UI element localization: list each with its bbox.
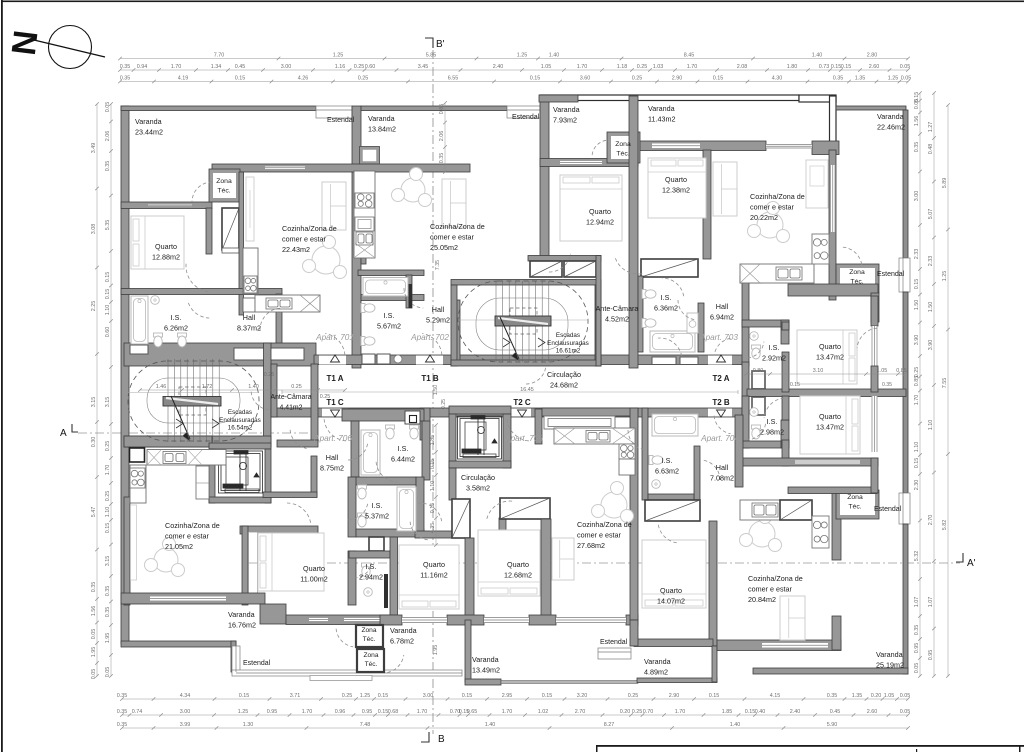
svg-text:1.10: 1.10	[928, 420, 934, 431]
svg-text:2.95: 2.95	[502, 693, 513, 699]
svg-text:0.35: 0.35	[117, 709, 128, 715]
svg-text:Zona: Zona	[615, 141, 631, 148]
svg-text:1.40: 1.40	[248, 384, 259, 390]
svg-text:1.25: 1.25	[238, 709, 249, 715]
svg-text:Cozinha/Zona de: Cozinha/Zona de	[430, 222, 485, 231]
svg-text:0.15: 0.15	[713, 75, 724, 81]
svg-text:comer e estar: comer e estar	[748, 584, 793, 593]
svg-text:Varanda: Varanda	[390, 626, 417, 635]
svg-text:0.20: 0.20	[620, 709, 631, 715]
svg-text:Varanda: Varanda	[472, 655, 499, 664]
svg-text:1.10: 1.10	[105, 507, 111, 518]
svg-text:0.05: 0.05	[900, 709, 911, 715]
svg-text:Varanda: Varanda	[648, 104, 675, 113]
svg-text:0.25: 0.25	[291, 384, 302, 390]
svg-text:2.90: 2.90	[672, 75, 683, 81]
svg-text:I.S.: I.S.	[398, 444, 409, 453]
svg-text:I.S.: I.S.	[366, 562, 377, 571]
svg-text:11.16m2: 11.16m2	[420, 571, 447, 580]
svg-text:Téc.: Téc.	[616, 151, 629, 158]
svg-text:0.15: 0.15	[914, 279, 920, 290]
svg-text:3.00: 3.00	[914, 191, 920, 202]
svg-text:1.07: 1.07	[914, 597, 920, 608]
svg-text:Téc.: Téc.	[365, 661, 378, 668]
svg-text:1.85: 1.85	[722, 709, 733, 715]
svg-text:0.05: 0.05	[91, 629, 97, 640]
svg-text:0.15: 0.15	[745, 709, 756, 715]
svg-text:3.00: 3.00	[180, 709, 191, 715]
svg-text:comer e estar: comer e estar	[165, 531, 210, 540]
svg-text:0.25: 0.25	[914, 367, 920, 378]
svg-text:Hall: Hall	[243, 313, 256, 322]
svg-text:0.05: 0.05	[900, 693, 911, 699]
svg-text:Apart. 701: Apart. 701	[315, 333, 354, 342]
svg-text:1.05: 1.05	[541, 64, 552, 70]
svg-text:Zona: Zona	[216, 178, 232, 185]
svg-text:0.15: 0.15	[430, 459, 436, 470]
svg-text:1.25: 1.25	[888, 75, 899, 81]
svg-text:22.46m2: 22.46m2	[877, 123, 905, 132]
svg-text:3.15: 3.15	[105, 556, 111, 567]
svg-text:0.60: 0.60	[105, 327, 111, 338]
svg-text:0.25: 0.25	[632, 75, 643, 81]
svg-text:0.85: 0.85	[439, 104, 445, 115]
svg-text:0.35: 0.35	[914, 625, 920, 636]
svg-text:Varanda: Varanda	[135, 117, 162, 126]
svg-text:Estendal: Estendal	[512, 114, 540, 121]
svg-text:Varanda: Varanda	[876, 650, 903, 659]
svg-text:1.10: 1.10	[914, 442, 920, 453]
svg-text:1.56: 1.56	[91, 606, 97, 617]
svg-text:0.15: 0.15	[542, 693, 553, 699]
svg-text:T2 C: T2 C	[513, 398, 531, 407]
svg-text:1.80: 1.80	[787, 64, 798, 70]
svg-text:1.70: 1.70	[302, 709, 313, 715]
svg-text:6.63m2: 6.63m2	[655, 467, 679, 476]
svg-text:7.70: 7.70	[214, 52, 225, 58]
svg-text:Circulação: Circulação	[547, 370, 581, 379]
svg-text:3.00: 3.00	[281, 64, 292, 70]
svg-text:5.35: 5.35	[105, 220, 111, 231]
svg-text:2.06: 2.06	[439, 131, 445, 142]
svg-text:5.32: 5.32	[914, 551, 920, 562]
svg-text:0.74: 0.74	[132, 709, 143, 715]
svg-text:Quarto: Quarto	[819, 342, 841, 351]
svg-text:Zona: Zona	[363, 652, 378, 659]
svg-text:25.19m2: 25.19m2	[876, 661, 904, 670]
svg-text:0.20: 0.20	[871, 693, 882, 699]
svg-text:Hall: Hall	[716, 463, 729, 472]
svg-text:3.15: 3.15	[105, 397, 111, 408]
svg-text:22.43m2: 22.43m2	[282, 245, 310, 254]
svg-text:1.50: 1.50	[914, 300, 920, 311]
svg-text:B: B	[438, 734, 445, 745]
svg-text:0.15: 0.15	[105, 523, 111, 534]
svg-text:T2 B: T2 B	[712, 398, 730, 407]
svg-text:11.43m2: 11.43m2	[648, 115, 675, 124]
svg-text:0.35: 0.35	[105, 161, 111, 172]
svg-text:0.25: 0.25	[358, 75, 369, 81]
svg-text:4.30: 4.30	[772, 75, 783, 81]
svg-text:0.05: 0.05	[901, 75, 912, 81]
svg-text:T2 A: T2 A	[712, 374, 729, 383]
svg-text:1.56: 1.56	[914, 116, 920, 127]
svg-text:1.40: 1.40	[485, 722, 496, 728]
svg-text:25.05m2: 25.05m2	[430, 243, 458, 252]
svg-text:12.68m2: 12.68m2	[504, 571, 532, 580]
svg-text:27.68m2: 27.68m2	[577, 541, 605, 550]
svg-text:0.40: 0.40	[755, 709, 766, 715]
svg-text:comer e estar: comer e estar	[430, 232, 475, 241]
svg-text:0.35: 0.35	[105, 607, 111, 618]
svg-text:4.35: 4.35	[430, 523, 436, 534]
svg-text:0.70: 0.70	[643, 709, 654, 715]
svg-text:0.15: 0.15	[462, 693, 473, 699]
svg-text:3.20: 3.20	[577, 693, 588, 699]
svg-text:2.60: 2.60	[869, 64, 880, 70]
svg-text:1.50: 1.50	[433, 385, 439, 395]
svg-text:I.S.: I.S.	[662, 456, 673, 465]
svg-text:4.34: 4.34	[180, 693, 191, 699]
svg-text:1.05: 1.05	[877, 368, 888, 374]
svg-text:20.22m2: 20.22m2	[750, 213, 778, 222]
svg-text:N: N	[5, 28, 46, 57]
svg-text:0.73: 0.73	[819, 64, 830, 70]
svg-text:Zona: Zona	[847, 494, 863, 501]
svg-text:Quarto: Quarto	[155, 242, 177, 251]
svg-text:7.35: 7.35	[435, 260, 441, 270]
svg-text:Estendal: Estendal	[600, 639, 628, 646]
svg-text:0.85: 0.85	[914, 376, 920, 387]
svg-text:0.45: 0.45	[235, 64, 246, 70]
svg-text:13.84m2: 13.84m2	[368, 125, 396, 134]
svg-text:21.05m2: 21.05m2	[165, 542, 193, 551]
svg-text:2.98m2: 2.98m2	[760, 428, 784, 437]
svg-text:6.94m2: 6.94m2	[710, 313, 734, 322]
svg-text:1.70: 1.70	[687, 64, 698, 70]
svg-text:1.35: 1.35	[855, 75, 866, 81]
svg-text:0.45: 0.45	[830, 709, 841, 715]
svg-text:5.37m2: 5.37m2	[365, 512, 389, 521]
svg-text:6.55: 6.55	[448, 75, 459, 81]
svg-text:0.25: 0.25	[264, 372, 275, 378]
svg-text:1.34: 1.34	[211, 64, 222, 70]
svg-text:0.25: 0.25	[441, 399, 447, 409]
svg-text:I.S.: I.S.	[769, 343, 780, 352]
svg-text:Téc.: Téc.	[850, 279, 863, 286]
svg-text:6.26m2: 6.26m2	[164, 324, 188, 333]
svg-text:0.25: 0.25	[628, 693, 639, 699]
svg-text:0.48: 0.48	[928, 144, 934, 155]
svg-text:Cozinha/Zona de: Cozinha/Zona de	[165, 521, 220, 530]
svg-text:0.15: 0.15	[239, 693, 250, 699]
svg-text:1.70: 1.70	[105, 465, 111, 476]
svg-text:2.60: 2.60	[867, 709, 878, 715]
svg-text:1.10: 1.10	[105, 305, 111, 316]
svg-text:0.35: 0.35	[117, 693, 128, 699]
svg-text:I.S.: I.S.	[171, 313, 182, 322]
svg-text:8.27: 8.27	[604, 722, 615, 728]
svg-text:0.05: 0.05	[914, 663, 920, 674]
svg-text:Zona: Zona	[849, 269, 865, 276]
svg-text:0.05: 0.05	[105, 667, 111, 678]
svg-text:11.00m2: 11.00m2	[300, 575, 327, 584]
svg-text:0.68: 0.68	[388, 709, 399, 715]
svg-text:16.61m2: 16.61m2	[556, 348, 581, 355]
svg-text:0.35: 0.35	[882, 382, 892, 388]
svg-text:1.25: 1.25	[942, 271, 948, 282]
svg-text:0.15: 0.15	[831, 64, 842, 70]
svg-text:1.95: 1.95	[433, 645, 439, 656]
svg-text:Zona: Zona	[361, 627, 376, 634]
svg-text:Estendal: Estendal	[243, 660, 271, 667]
svg-text:Escadas: Escadas	[228, 409, 252, 416]
svg-text:0.15: 0.15	[430, 503, 436, 514]
svg-text:1.72: 1.72	[202, 384, 213, 390]
svg-text:8.75m2: 8.75m2	[320, 464, 344, 473]
svg-text:T1 B: T1 B	[421, 374, 439, 383]
svg-text:0.25: 0.25	[105, 441, 111, 452]
svg-text:1.95: 1.95	[105, 633, 111, 644]
svg-text:0.15: 0.15	[378, 709, 389, 715]
svg-text:2.25: 2.25	[91, 301, 97, 312]
svg-text:2.40: 2.40	[493, 64, 504, 70]
svg-text:0.30: 0.30	[91, 437, 97, 448]
svg-text:3.00: 3.00	[423, 693, 434, 699]
svg-text:1.25: 1.25	[517, 52, 528, 58]
svg-text:Cozinha/Zona de: Cozinha/Zona de	[750, 192, 805, 201]
svg-text:1.70: 1.70	[502, 709, 513, 715]
svg-text:0.95: 0.95	[362, 709, 373, 715]
svg-text:5.29m2: 5.29m2	[426, 316, 450, 325]
svg-text:0.15: 0.15	[378, 693, 389, 699]
svg-text:12.94m2: 12.94m2	[586, 218, 614, 227]
svg-text:2.33: 2.33	[914, 249, 920, 260]
svg-text:0.25: 0.25	[354, 64, 365, 70]
svg-text:6.36m2: 6.36m2	[654, 304, 678, 313]
svg-text:B': B'	[436, 39, 445, 50]
svg-text:13.47m2: 13.47m2	[816, 423, 844, 432]
svg-text:2.06: 2.06	[105, 131, 111, 142]
svg-text:3.90: 3.90	[928, 340, 934, 351]
svg-text:0.15: 0.15	[530, 75, 541, 81]
svg-text:1.85: 1.85	[430, 435, 436, 446]
svg-text:0.60: 0.60	[365, 64, 376, 70]
svg-text:I.S.: I.S.	[372, 501, 383, 510]
svg-text:2.40: 2.40	[790, 709, 801, 715]
svg-text:0.85: 0.85	[896, 368, 907, 374]
svg-text:3.49: 3.49	[91, 143, 97, 154]
svg-text:1.05: 1.05	[884, 693, 895, 699]
svg-text:Varanda: Varanda	[877, 112, 904, 121]
svg-text:7.08m2: 7.08m2	[710, 474, 734, 483]
svg-text:6.78m2: 6.78m2	[390, 637, 414, 646]
svg-text:0.15: 0.15	[235, 75, 246, 81]
svg-text:2.30: 2.30	[914, 480, 920, 491]
svg-text:1.25: 1.25	[360, 693, 371, 699]
svg-text:1.95: 1.95	[91, 647, 97, 658]
svg-text:0.05: 0.05	[91, 669, 97, 680]
svg-text:4.15: 4.15	[770, 693, 781, 699]
svg-text:Ante-Câmara: Ante-Câmara	[271, 394, 312, 401]
svg-text:16.76m2: 16.76m2	[228, 621, 256, 630]
svg-text:Varanda: Varanda	[228, 610, 255, 619]
svg-text:2.92m2: 2.92m2	[762, 354, 786, 363]
svg-text:3.58m2: 3.58m2	[466, 484, 490, 493]
svg-text:8.37m2: 8.37m2	[237, 324, 261, 333]
svg-text:Quarto: Quarto	[507, 560, 529, 569]
svg-text:comer e estar: comer e estar	[750, 202, 795, 211]
svg-text:0.95: 0.95	[914, 643, 920, 654]
svg-text:Téc.: Téc.	[217, 188, 230, 195]
svg-text:0.65: 0.65	[467, 709, 478, 715]
svg-text:0.15: 0.15	[914, 458, 920, 469]
svg-text:0.35: 0.35	[105, 586, 111, 597]
svg-text:Apart. 704: Apart. 704	[700, 434, 739, 443]
svg-text:1.70: 1.70	[171, 64, 182, 70]
svg-text:comer e estar: comer e estar	[282, 234, 327, 243]
svg-text:1.02: 1.02	[538, 709, 549, 715]
svg-text:A': A'	[967, 558, 976, 569]
svg-text:6.44m2: 6.44m2	[391, 455, 415, 464]
svg-text:1.50: 1.50	[928, 302, 934, 313]
svg-text:I.S.: I.S.	[384, 311, 395, 320]
svg-text:0.05: 0.05	[105, 102, 111, 113]
svg-text:4.52m2: 4.52m2	[605, 315, 629, 324]
svg-text:I.S.: I.S.	[661, 293, 672, 302]
svg-text:Apart. 703: Apart. 703	[699, 333, 738, 342]
svg-text:0.15: 0.15	[709, 693, 720, 699]
svg-text:7.93m2: 7.93m2	[553, 116, 577, 125]
svg-text:0.96: 0.96	[335, 709, 346, 715]
svg-text:0.15: 0.15	[841, 64, 852, 70]
svg-text:Cozinha/Zona de: Cozinha/Zona de	[748, 574, 803, 583]
svg-text:3.71: 3.71	[290, 693, 301, 699]
svg-text:0.35: 0.35	[827, 693, 838, 699]
svg-text:I.S.: I.S.	[767, 417, 778, 426]
svg-text:2.08: 2.08	[737, 64, 748, 70]
svg-text:0.25: 0.25	[637, 64, 648, 70]
svg-text:16.54m2: 16.54m2	[228, 425, 253, 432]
svg-text:1.70: 1.70	[914, 395, 920, 406]
svg-text:2.90: 2.90	[669, 693, 680, 699]
svg-text:4.19: 4.19	[178, 75, 189, 81]
svg-text:1.07: 1.07	[928, 597, 934, 608]
svg-text:13.47m2: 13.47m2	[816, 353, 844, 362]
svg-text:3.08: 3.08	[91, 224, 97, 235]
svg-text:1.70: 1.70	[577, 64, 588, 70]
svg-text:0.35: 0.35	[833, 75, 844, 81]
svg-text:Quarto: Quarto	[303, 564, 325, 573]
svg-text:0.35: 0.35	[117, 722, 128, 728]
svg-text:0.35: 0.35	[120, 64, 131, 70]
svg-text:Cozinha/Zona de: Cozinha/Zona de	[577, 520, 632, 529]
svg-text:1.18: 1.18	[617, 64, 628, 70]
svg-text:5.85: 5.85	[426, 52, 437, 58]
svg-text:8.45: 8.45	[684, 52, 695, 58]
svg-text:2.70: 2.70	[928, 515, 934, 526]
svg-text:1.10: 1.10	[430, 481, 436, 492]
svg-text:0.35: 0.35	[91, 582, 97, 593]
svg-text:0.25: 0.25	[342, 693, 353, 699]
svg-text:0.35: 0.35	[914, 142, 920, 153]
svg-text:Quarto: Quarto	[819, 412, 841, 421]
svg-text:1.03: 1.03	[653, 64, 664, 70]
svg-text:14.07m2: 14.07m2	[657, 597, 685, 606]
svg-text:3.90: 3.90	[914, 335, 920, 346]
svg-text:Téc.: Téc.	[363, 636, 376, 643]
svg-text:13.49m2: 13.49m2	[472, 666, 500, 675]
svg-text:Apart. 702: Apart. 702	[410, 333, 449, 342]
svg-text:0.05: 0.05	[914, 99, 920, 110]
svg-text:comer e estar: comer e estar	[577, 530, 622, 539]
svg-text:Escadas: Escadas	[556, 332, 580, 339]
svg-text:1.40: 1.40	[549, 52, 560, 58]
svg-text:0.05: 0.05	[900, 64, 911, 70]
svg-text:3.99: 3.99	[180, 722, 191, 728]
svg-text:Ante-Câmara: Ante-Câmara	[596, 304, 639, 313]
svg-text:4.89m2: 4.89m2	[644, 668, 668, 677]
svg-text:Varanda: Varanda	[368, 114, 395, 123]
svg-text:Quarto: Quarto	[423, 560, 445, 569]
svg-text:Enclausuradas: Enclausuradas	[219, 417, 261, 424]
svg-text:0.35: 0.35	[120, 75, 131, 81]
svg-text:1.46: 1.46	[156, 384, 167, 390]
svg-text:3.60: 3.60	[580, 75, 591, 81]
svg-text:5.89: 5.89	[942, 178, 948, 189]
svg-text:Quarto: Quarto	[660, 586, 682, 595]
svg-text:Hall: Hall	[432, 305, 445, 314]
svg-text:1.40: 1.40	[730, 722, 741, 728]
svg-text:1.70: 1.70	[675, 709, 686, 715]
svg-text:3.10: 3.10	[813, 368, 824, 374]
svg-text:Hall: Hall	[326, 453, 339, 462]
svg-text:Estendal: Estendal	[877, 271, 905, 278]
svg-text:Téc.: Téc.	[848, 504, 861, 511]
svg-text:Quarto: Quarto	[665, 175, 687, 184]
svg-text:12.88m2: 12.88m2	[152, 253, 180, 262]
svg-text:5.90: 5.90	[827, 722, 838, 728]
svg-text:0.95: 0.95	[928, 650, 934, 661]
svg-text:1.35: 1.35	[852, 693, 863, 699]
svg-text:0.80: 0.80	[753, 368, 764, 374]
svg-text:Quarto: Quarto	[589, 207, 611, 216]
svg-text:2.94m2: 2.94m2	[359, 573, 383, 582]
svg-text:0.25: 0.25	[632, 709, 643, 715]
svg-text:2.70: 2.70	[575, 709, 586, 715]
svg-text:2.33: 2.33	[928, 256, 934, 267]
svg-text:0.15: 0.15	[105, 272, 111, 283]
svg-text:Estendal: Estendal	[874, 506, 902, 513]
svg-text:1.25: 1.25	[333, 52, 344, 58]
svg-text:1.27: 1.27	[928, 122, 934, 133]
svg-text:5.07: 5.07	[928, 209, 934, 220]
svg-text:Circulação: Circulação	[461, 473, 495, 482]
svg-text:Hall: Hall	[716, 302, 729, 311]
svg-text:Apart. 705: Apart. 705	[504, 434, 543, 443]
svg-text:1.30: 1.30	[243, 722, 254, 728]
svg-text:Estendal: Estendal	[327, 117, 355, 124]
svg-text:0.95: 0.95	[267, 709, 278, 715]
svg-text:1.70: 1.70	[417, 709, 428, 715]
svg-text:23.44m2: 23.44m2	[135, 128, 163, 137]
svg-text:0.25: 0.25	[320, 394, 331, 400]
svg-text:24.68m2: 24.68m2	[550, 381, 578, 390]
svg-text:3.15: 3.15	[91, 397, 97, 408]
svg-text:3.45: 3.45	[418, 64, 429, 70]
svg-text:4.26: 4.26	[298, 75, 309, 81]
svg-text:0.15: 0.15	[790, 382, 800, 388]
